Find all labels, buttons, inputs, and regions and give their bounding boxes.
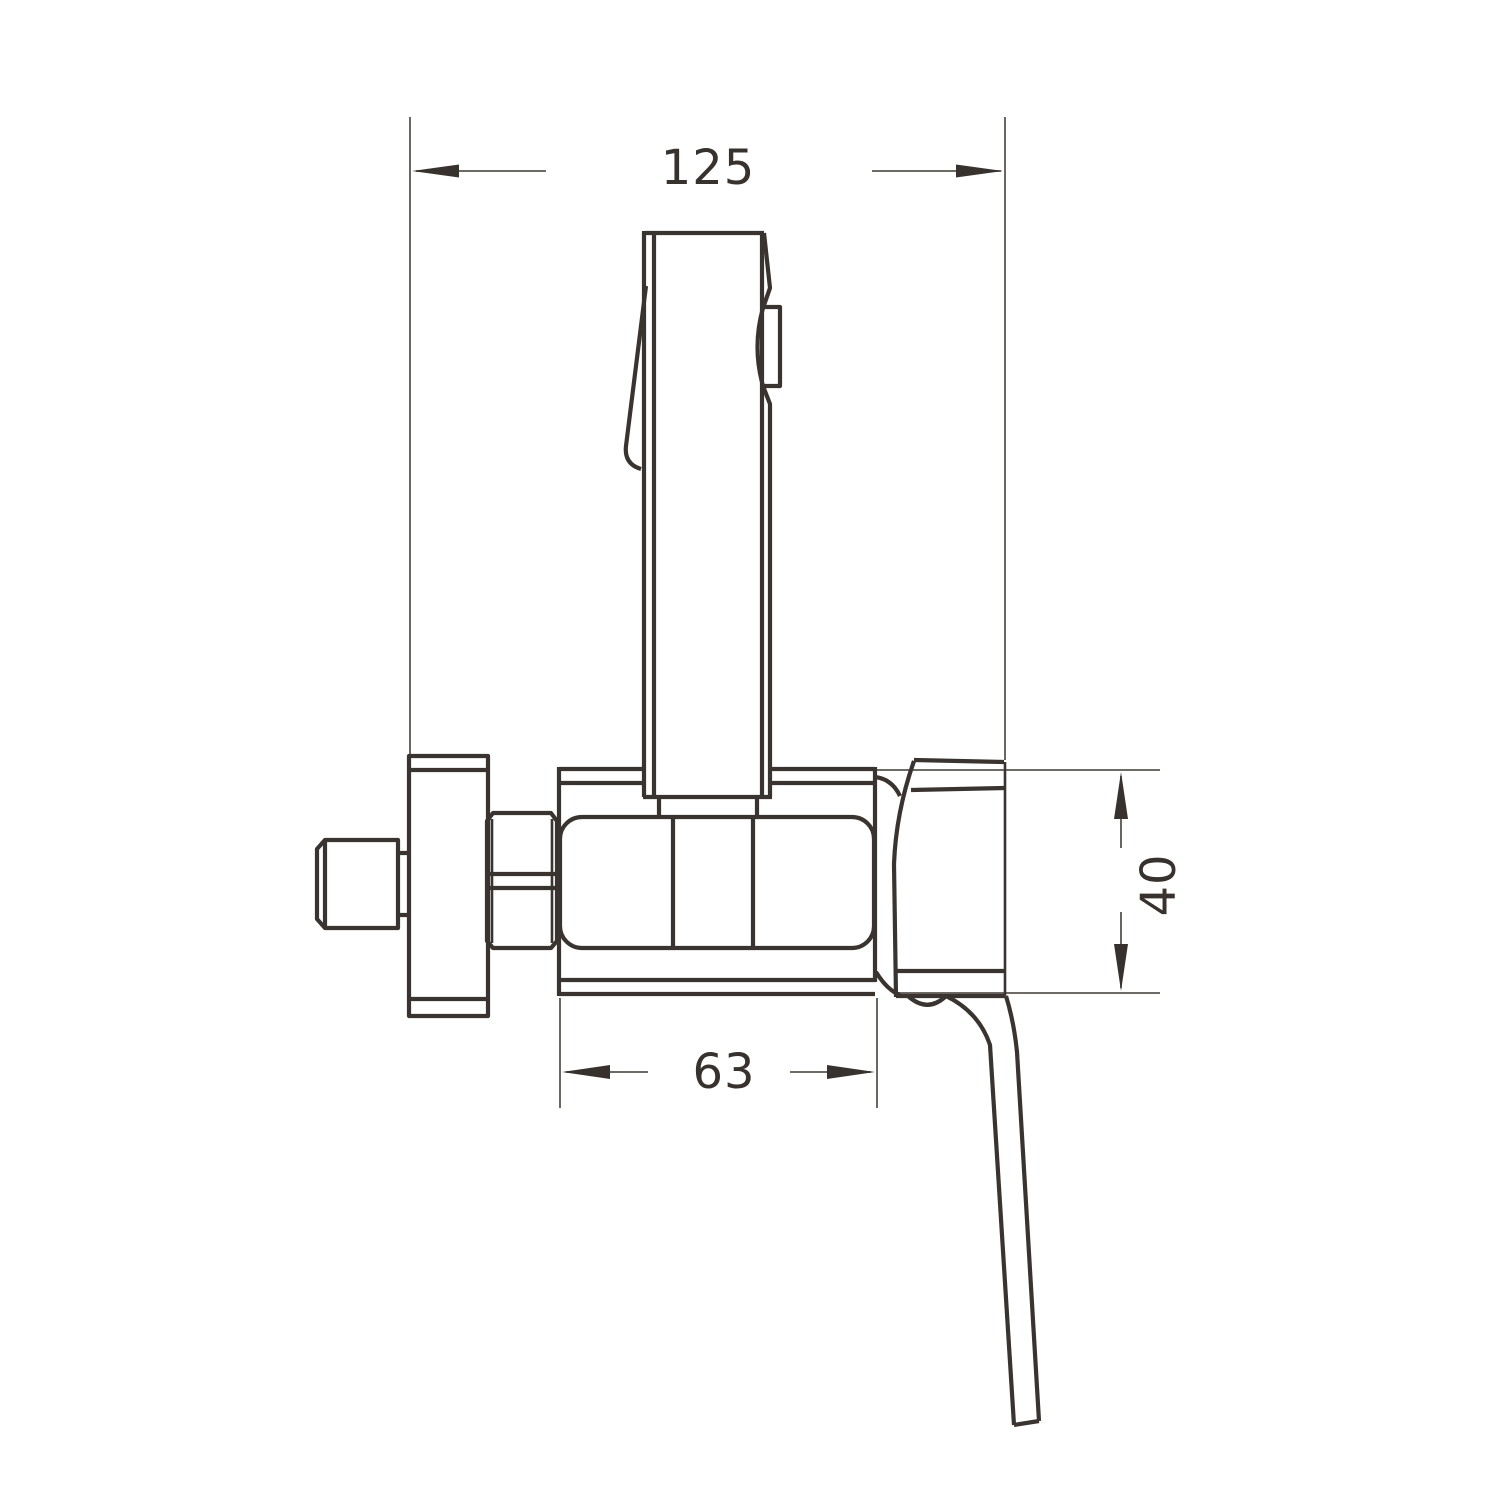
head-neck (659, 797, 757, 817)
valve-body (559, 767, 875, 996)
lever-outer-edge (946, 996, 1014, 1425)
wall-plate-left (409, 756, 488, 1016)
arrow-right-icon (956, 165, 1003, 178)
dim-body-width-label: 63 (692, 1044, 755, 1100)
mounting-nut (487, 813, 557, 948)
wall-flange-right (875, 760, 1005, 997)
dimension-63: 63 (560, 998, 877, 1108)
nut-outline (487, 813, 557, 948)
arrow-right-icon (827, 1065, 875, 1079)
spray-button (764, 307, 780, 386)
flange-top-inner-line (911, 788, 1005, 790)
supply-knob (317, 840, 410, 928)
nut-facet-lines (487, 874, 557, 888)
control-lever (908, 996, 1039, 1425)
arrow-down-icon (1114, 944, 1128, 991)
nut-chamfer-lines (492, 819, 552, 943)
knob-face (325, 840, 398, 928)
technical-drawing-canvas: 125 40 63 (0, 0, 1500, 1500)
flange-left-edge (894, 761, 914, 997)
dimension-125: 125 (410, 117, 1005, 760)
cone-top-arc (875, 777, 900, 796)
cartridge-divider-lines (673, 817, 753, 948)
dimension-40: 40 (875, 770, 1187, 993)
arrow-up-icon (1114, 772, 1128, 819)
lever-tip (1014, 1421, 1039, 1425)
cartridge-outline (560, 817, 874, 948)
drawing-sheet: 125 40 63 (0, 0, 1500, 1500)
sprayer-head (626, 231, 780, 817)
dim-overall-width-label: 125 (661, 140, 756, 196)
arrow-left-icon (562, 1065, 610, 1079)
flange-top-edge (914, 760, 1004, 762)
dim-body-height-label: 40 (1131, 853, 1187, 916)
plate-outline (409, 756, 488, 1016)
arrow-left-icon (412, 165, 459, 178)
